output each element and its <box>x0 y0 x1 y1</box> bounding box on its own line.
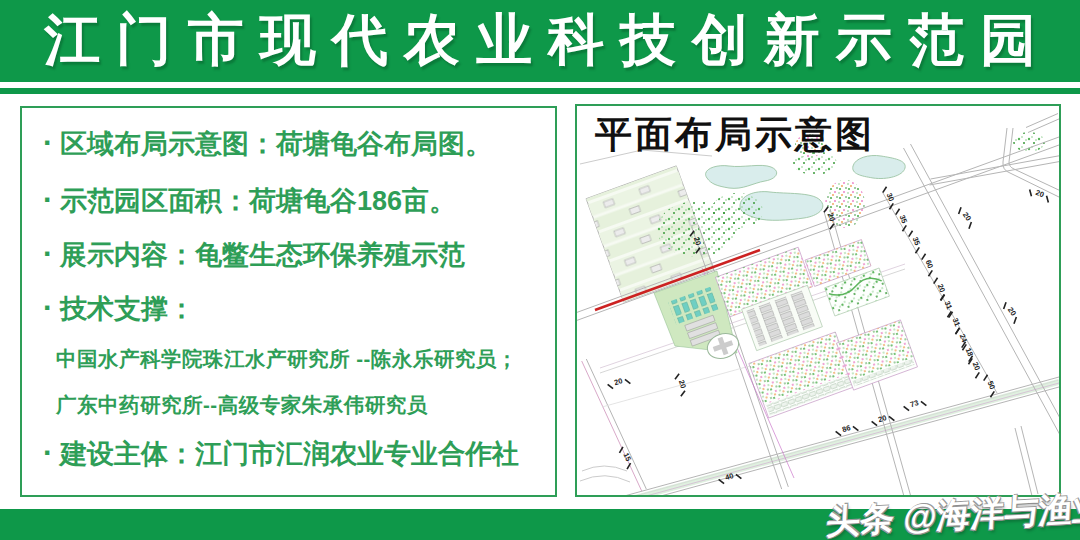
dimension-label: 20 <box>877 413 888 424</box>
bullet-dot: · <box>36 293 60 323</box>
dimension-tick <box>1014 317 1016 324</box>
dimension-tick <box>830 224 834 230</box>
dimension-tick <box>904 406 909 410</box>
bullet-dot: · <box>36 185 60 215</box>
info-item: 广东中药研究所--高级专家朱承伟研究员 <box>22 392 428 418</box>
info-item-text: 中国水产科学院珠江水产研究所 --陈永乐研究员； <box>56 346 518 372</box>
dimension-label: 30 <box>885 192 896 203</box>
dimension-label: 20 <box>677 379 688 390</box>
dimension-tick <box>969 222 971 229</box>
info-item-text: 示范园区面积：荷塘龟谷186亩。 <box>60 185 456 219</box>
dimension-label: 20 <box>1006 306 1018 318</box>
dimension-label: 20 <box>936 283 947 294</box>
dimension-tick <box>1030 190 1032 197</box>
bullet-dot: · <box>36 239 60 269</box>
dimension-tick <box>956 328 960 334</box>
dimension-label: 15 <box>621 451 633 462</box>
info-item: ·区域布局示意图：荷塘龟谷布局图。 <box>22 128 492 162</box>
header-stripe <box>0 88 1080 94</box>
vegetation-plots <box>715 240 917 418</box>
info-item-text: 区域布局示意图：荷塘龟谷布局图。 <box>60 128 492 162</box>
dimension-label: 50 <box>986 380 997 391</box>
dimension-label: 35 <box>898 214 909 225</box>
dimension-tick <box>959 207 961 214</box>
dimension-label: 24 <box>958 333 970 345</box>
dimension-tick <box>1047 196 1049 203</box>
info-item: ·展示内容：龟鳖生态环保养殖示范 <box>22 239 465 273</box>
dimension-tick <box>909 231 913 237</box>
dimension-tick <box>975 372 979 378</box>
plan-panel: 3035356020313124182050202020202086207340… <box>575 104 1061 497</box>
info-item-text: 广东中药研究所--高级专家朱承伟研究员 <box>56 392 428 418</box>
dimension-label: 73 <box>909 398 920 409</box>
dimension-tick <box>853 426 858 430</box>
dimension-tick <box>896 209 900 215</box>
dimension-tick <box>984 375 988 381</box>
dimension-label: 20 <box>613 376 624 387</box>
info-item: 中国水产科学院珠江水产研究所 --陈永乐研究员； <box>22 346 518 372</box>
dimension-tick <box>990 391 994 397</box>
dimension-tick <box>872 421 877 425</box>
dimension-tick <box>681 391 685 397</box>
dimension-tick <box>675 374 679 380</box>
dimension-label: 20 <box>961 211 973 223</box>
dimension-tick <box>883 187 887 193</box>
info-item-text: 建设主体：江门市汇润农业专业合作社 <box>60 438 519 472</box>
header-banner: 江门市现代农业科技创新示范园 <box>0 0 1080 82</box>
dimension-label: 31 <box>951 317 962 328</box>
site-plan-svg: 3035356020313124182050202020202086207340… <box>577 106 1059 495</box>
dimension-tick <box>1004 302 1006 309</box>
dimension-label: 20 <box>1034 188 1045 199</box>
dimension-tick <box>915 247 919 253</box>
dimension-tick <box>934 278 938 284</box>
dimension-label: 60 <box>924 259 935 270</box>
page-title: 江门市现代农业科技创新示范园 <box>28 3 1052 79</box>
info-item-text: 展示内容：龟鳖生态环保养殖示范 <box>60 239 465 273</box>
info-item: ·建设主体：江门市汇润农业专业合作社 <box>22 438 519 472</box>
info-panel: ·区域布局示意图：荷塘龟谷布局图。·示范园区面积：荷塘龟谷186亩。·展示内容：… <box>20 106 557 497</box>
dimension-tick <box>608 384 613 388</box>
info-list: ·区域布局示意图：荷塘龟谷布局图。·示范园区面积：荷塘龟谷186亩。·展示内容：… <box>22 108 555 495</box>
dimension-tick <box>922 254 926 260</box>
dimension-tick <box>921 401 926 405</box>
dimension-label: 18 <box>964 347 975 358</box>
dimension-tick <box>625 379 630 383</box>
plan-title: 平面布局示意图 <box>595 110 875 160</box>
info-item-text: 技术支撑： <box>60 293 195 327</box>
dimension-tick <box>836 431 841 435</box>
info-item: ·技术支撑： <box>22 293 195 327</box>
bullet-dot: · <box>36 128 60 158</box>
bullet-dot: · <box>36 438 60 468</box>
dimension-label: 31 <box>943 300 954 311</box>
info-item: ·示范园区面积：荷塘龟谷186亩。 <box>22 185 456 219</box>
dimension-label: 20 <box>971 361 982 372</box>
dimension-label: 86 <box>841 423 852 434</box>
